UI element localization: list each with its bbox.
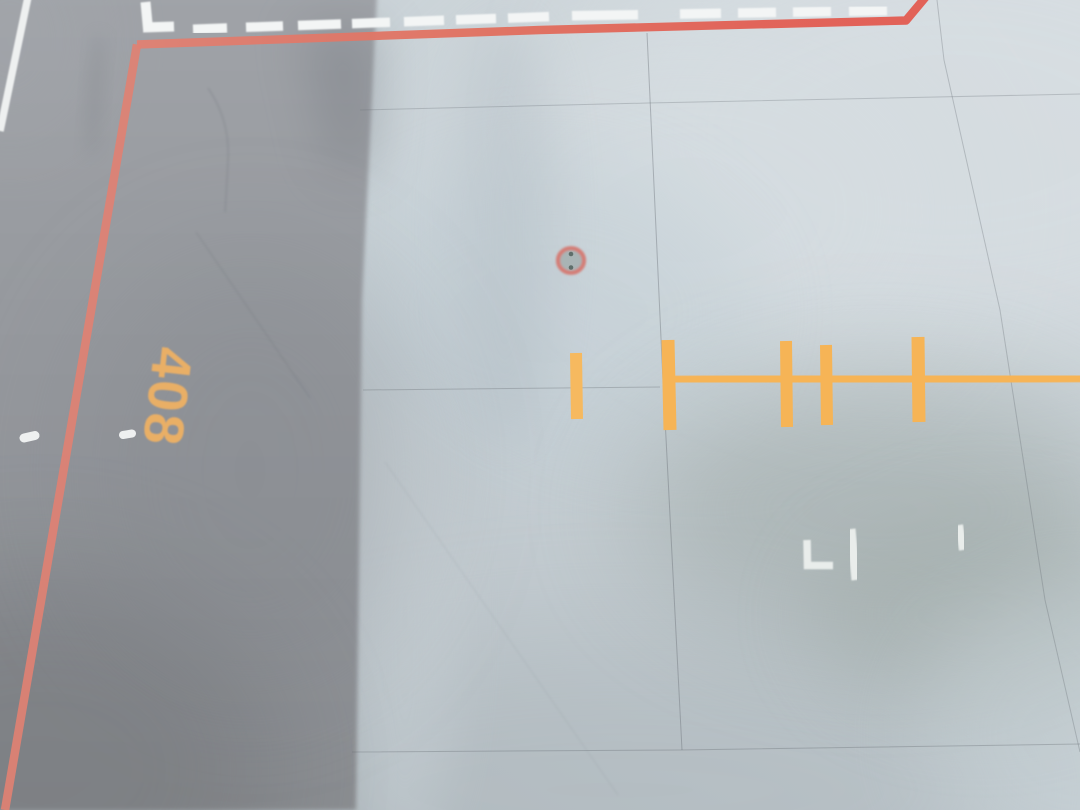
svg-text:408: 408 [131,344,205,450]
